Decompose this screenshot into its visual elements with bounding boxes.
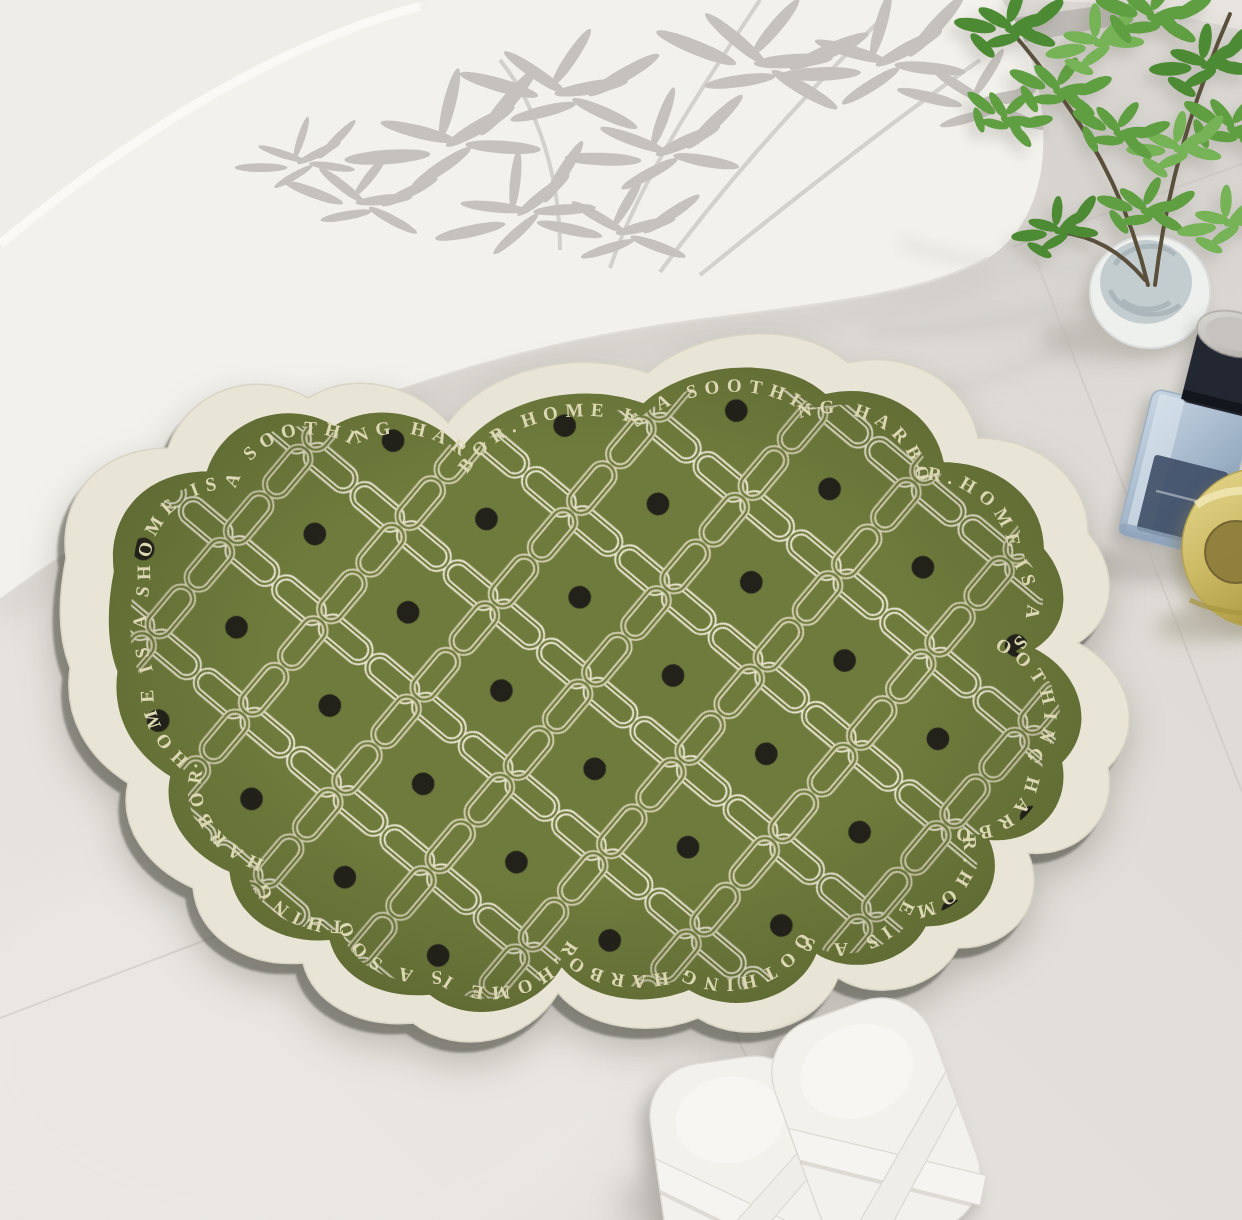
bathroom-scene: HOME IS A SOOTHING HARBOR.HOME IS A SOOT…	[0, 0, 1242, 1220]
